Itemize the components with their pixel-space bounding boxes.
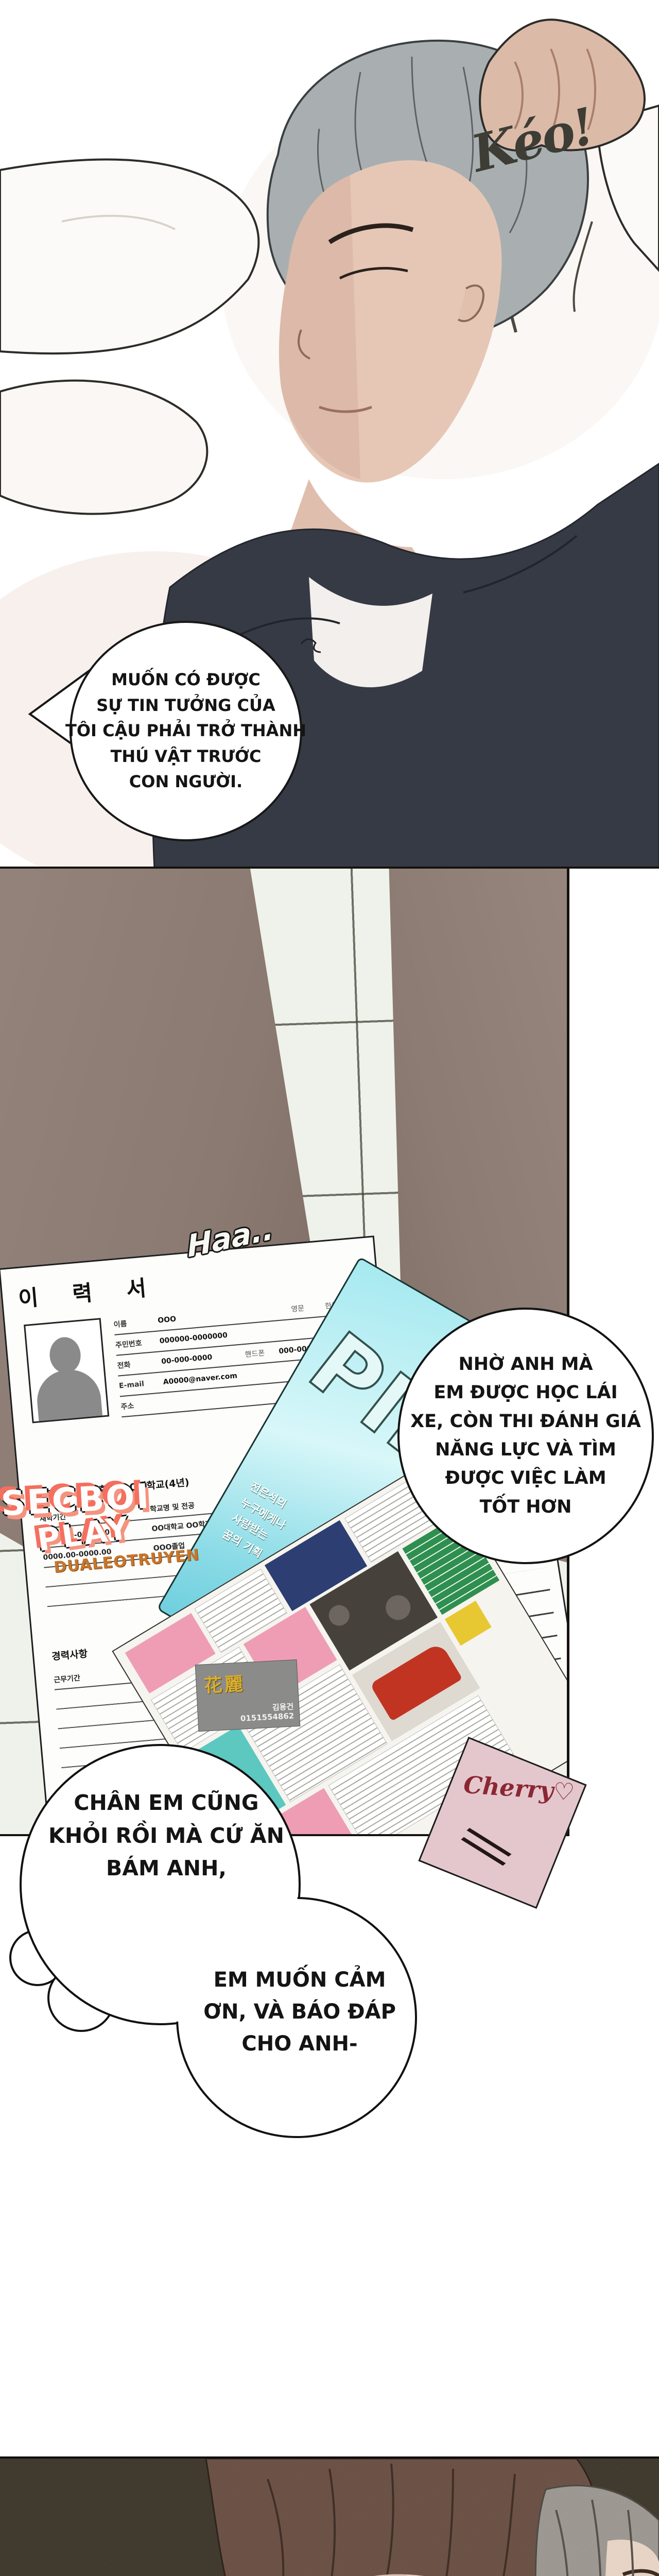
panel-3 [0,2456,659,2576]
thought-cloud-cluster: CHÂN EM CŨNG KHỎI RỒI MÀ CỨ ĂN BÁM ANH, … [0,1731,443,2143]
business-card-name: 김용건 [272,1702,293,1712]
photo-silhouette-head [48,1336,82,1375]
business-card-phone: 0151554862 [240,1711,294,1723]
bubble-thanks-text: NHỜ ANH MÀ EM ĐƯỢC HỌC LÁI XE, CÒN THI Đ… [400,1310,652,1562]
speech-bubble-thanks: NHỜ ANH MÀ EM ĐƯỢC HỌC LÁI XE, CÒN THI Đ… [397,1308,654,1564]
business-card-brand: 花麗 [203,1669,246,1698]
career-section-header: 경력사항 [51,1646,88,1663]
bubble-repay-text: EM MUỐN CẢM ƠN, VÀ BÁO ĐÁP CHO ANH- [197,1964,403,2060]
business-card-contact: 김용건 0151554862 [240,1702,294,1724]
business-card: 花麗 김용건 0151554862 [195,1659,301,1732]
panel-3-artwork [0,2459,659,2576]
script-signature: Cherry♡ [463,1771,576,1806]
bubble-trust-text: MUỐN CÓ ĐƯỢC SỰ TIN TƯỞNG CỦA TÔI CẬU PH… [72,623,300,839]
photo-silhouette-torso [34,1367,103,1423]
speech-bubble-trust: MUỐN CÓ ĐƯỢC SỰ TIN TƯỞNG CỦA TÔI CẬU PH… [70,621,302,841]
bubble-leg-text: CHÂN EM CŨNG KHỎI RỒI MÀ CỨ ĂN BÁM ANH, [45,1787,287,1885]
resume-photo-placeholder [24,1318,109,1423]
comic-page: Kéo! MUỐN CÓ ĐƯỢC SỰ TIN TƯỞNG CỦA TÔI C… [0,0,659,2576]
equals-mark [458,1827,511,1872]
